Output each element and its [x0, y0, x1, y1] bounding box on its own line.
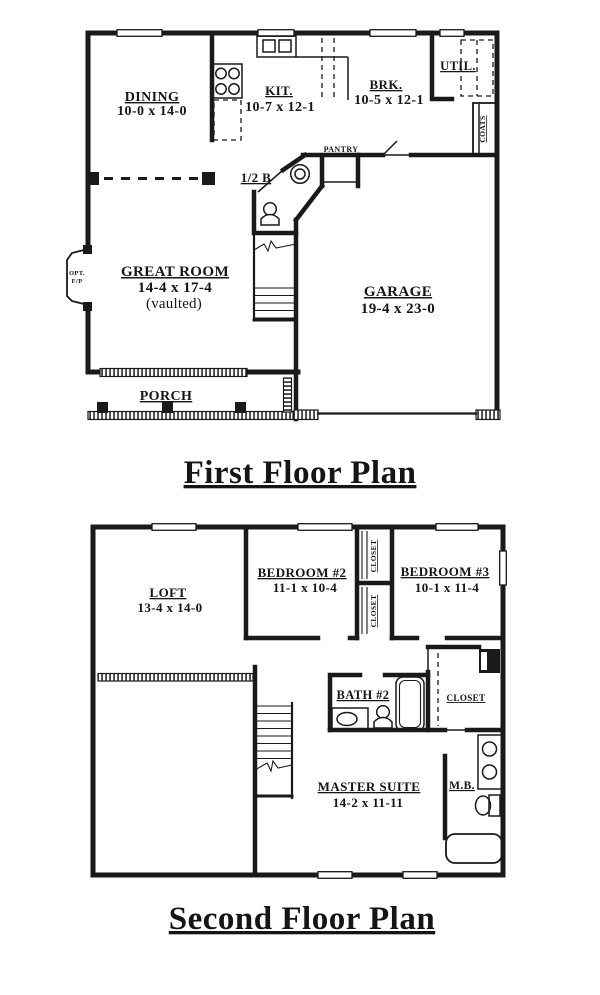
- porch-post: [97, 402, 108, 413]
- master-suite-label: MASTER SUITE: [318, 779, 421, 794]
- garage-door-jamb: [476, 410, 500, 420]
- pedestal-sink-icon: [261, 203, 279, 225]
- mb-tub-icon: [446, 834, 502, 863]
- floor-plan-drawing: DINING 10-0 x 14-0 KIT. 10-7 x 12-1 BRK.…: [0, 0, 600, 995]
- window: [318, 872, 352, 879]
- pantry-label: PANTRY: [324, 145, 359, 154]
- column-post: [86, 172, 99, 185]
- second-floor-fixtures: [255, 677, 502, 863]
- mb-vanity-sink-icon: [478, 735, 502, 789]
- closet-b-label: CLOSET: [369, 595, 378, 628]
- window: [152, 524, 196, 531]
- loft-dims: 13-4 x 14-0: [137, 600, 202, 615]
- second-floor-title: Second Floor Plan: [169, 901, 435, 937]
- master-bath-label: M.B.: [449, 780, 475, 792]
- bath2-vanity-sink-icon: [332, 708, 368, 730]
- toilet-icon: [291, 165, 310, 184]
- first-floor-plan: DINING 10-0 x 14-0 KIT. 10-7 x 12-1 BRK.…: [67, 30, 500, 491]
- porch-rail-front: [88, 412, 293, 420]
- kitchen-counter-dashed: [322, 38, 334, 98]
- stair-break-line: [254, 241, 296, 251]
- mb-toilet-icon: [476, 795, 501, 816]
- breakfast-dims: 10-5 x 12-1: [354, 93, 424, 108]
- bedroom3-dims: 10-1 x 11-4: [415, 580, 479, 595]
- porch-window-band: [100, 369, 247, 377]
- garage-dims: 19-4 x 23-0: [361, 301, 435, 317]
- garage-label: GARAGE: [364, 284, 432, 300]
- half-bath-label: 1/2 B: [241, 170, 272, 185]
- fireplace-label-2: F/P: [72, 278, 83, 285]
- second-floor-plan: LOFT 13-4 x 14-0 BEDROOM #2 11-1 x 10-4 …: [93, 524, 506, 937]
- stairs-up: [254, 233, 296, 320]
- stair-railing: [98, 674, 253, 682]
- stair-break-line: [255, 761, 292, 771]
- stairs-down: [255, 703, 292, 798]
- utility-label: UTIL.: [440, 59, 476, 73]
- closet-a-label: CLOSET: [369, 540, 378, 573]
- window: [403, 872, 437, 879]
- window: [440, 30, 464, 37]
- first-floor-title: First Floor Plan: [184, 455, 417, 491]
- window: [436, 524, 478, 531]
- porch-post: [235, 402, 246, 413]
- porch-rail-side: [284, 378, 292, 412]
- great-room-label: GREAT ROOM: [121, 264, 229, 280]
- first-floor-walls: [86, 30, 500, 420]
- dining-label: DINING: [125, 90, 180, 105]
- window: [117, 30, 162, 37]
- great-room-note: (vaulted): [146, 296, 202, 312]
- great-room-dims: 14-4 x 17-4: [138, 280, 212, 296]
- window: [500, 551, 507, 585]
- master-suite-dims: 14-2 x 11-11: [333, 795, 404, 810]
- fireplace-label-1: OPT.: [69, 270, 85, 277]
- kitchen-dims: 10-7 x 12-1: [245, 100, 315, 115]
- bedroom3-label: BEDROOM #3: [401, 564, 490, 579]
- walk-in-closet-label: CLOSET: [447, 693, 486, 703]
- porch-label: PORCH: [140, 389, 193, 404]
- dining-dims: 10-0 x 14-0: [117, 104, 187, 119]
- floor-plan-sheet: DINING 10-0 x 14-0 KIT. 10-7 x 12-1 BRK.…: [0, 0, 600, 995]
- coats-label: COATS: [478, 115, 487, 142]
- bath2-label: BATH #2: [337, 688, 390, 702]
- garage-door-jamb: [294, 410, 318, 420]
- window: [298, 524, 352, 531]
- entry-door: [383, 141, 411, 155]
- bedroom2-dims: 11-1 x 10-4: [273, 580, 337, 595]
- bedroom2-label: BEDROOM #2: [258, 565, 347, 580]
- bath2-tub-icon: [396, 677, 424, 731]
- double-sink-icon: [257, 36, 296, 57]
- column-post: [202, 172, 215, 185]
- window: [370, 30, 416, 37]
- breakfast-label: BRK.: [369, 77, 402, 92]
- kitchen-label: KIT.: [265, 83, 293, 98]
- range-icon: [212, 64, 242, 140]
- toilet-figure-icon: [374, 706, 392, 728]
- loft-label: LOFT: [150, 585, 187, 600]
